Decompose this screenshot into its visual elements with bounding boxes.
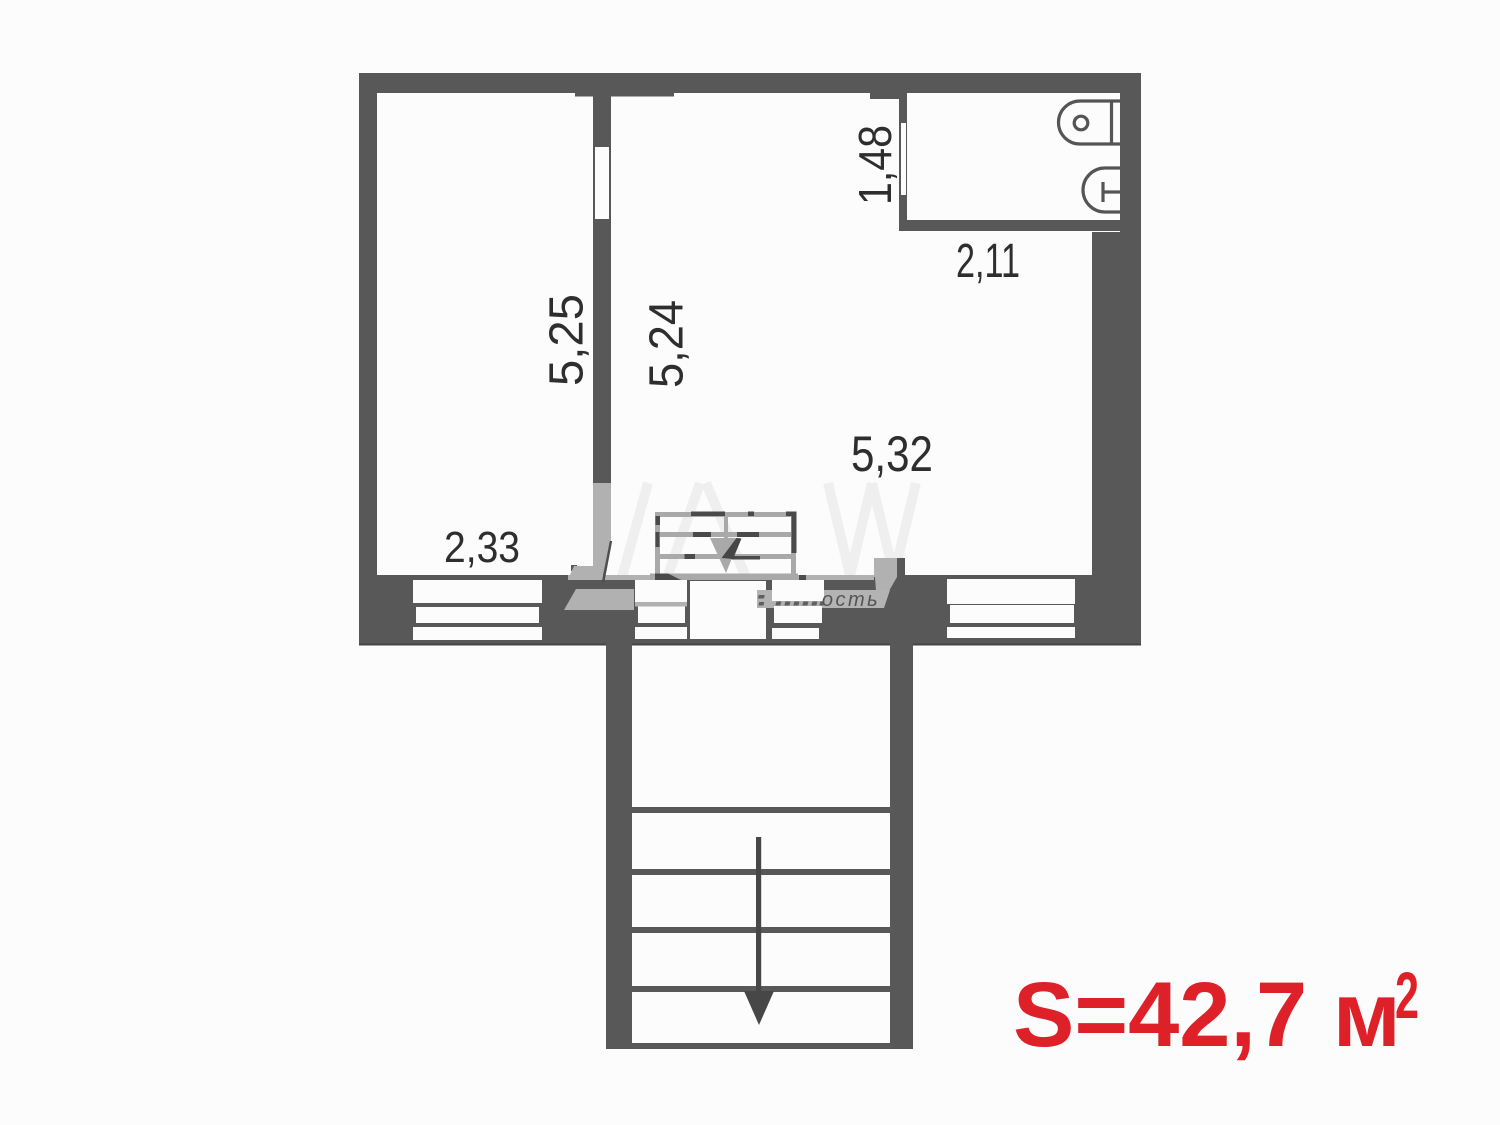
svg-text:5,32: 5,32 [851,426,933,482]
svg-text:5,24: 5,24 [641,300,694,388]
svg-text:2: 2 [1395,958,1419,1032]
svg-text:2,11: 2,11 [956,235,1020,288]
svg-text:5,25: 5,25 [541,294,594,386]
svg-text:1,48: 1,48 [849,125,901,205]
svg-text:2,33: 2,33 [444,523,520,572]
svg-text:ость: ость [822,589,880,611]
svg-text:S=42,7 м: S=42,7 м [1013,964,1401,1066]
